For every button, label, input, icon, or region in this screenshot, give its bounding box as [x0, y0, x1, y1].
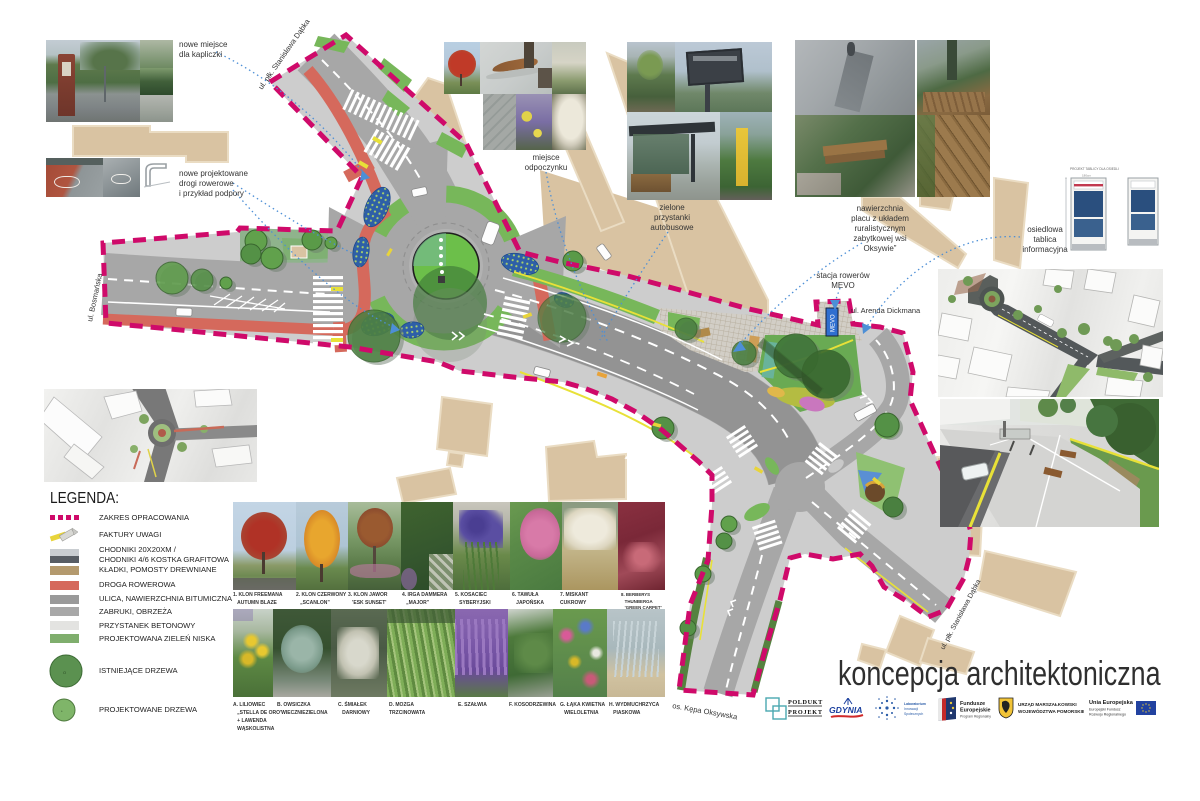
svg-text:Unia Europejska: Unia Europejska: [1089, 700, 1134, 706]
svg-text:Europejskie: Europejskie: [960, 708, 991, 714]
svg-text:180cm: 180cm: [1082, 174, 1092, 178]
svg-text:WOJEWÓDZTWA POMORSKIEGO: WOJEWÓDZTWA POMORSKIEGO: [1018, 707, 1084, 714]
svg-text:Społecznych: Społecznych: [904, 712, 923, 716]
svg-text:GDYNIA: GDYNIA: [829, 705, 862, 715]
svg-text:PROJEKT TABLICY DLA OSIEDLI: PROJEKT TABLICY DLA OSIEDLI: [1070, 167, 1119, 171]
svg-text:os. Kępa Oksywska: os. Kępa Oksywska: [672, 701, 739, 721]
svg-text:Innowacji: Innowacji: [904, 707, 918, 711]
svg-text:Laboratorium: Laboratorium: [904, 702, 926, 706]
svg-text:Program Regionalny: Program Regionalny: [960, 715, 991, 719]
svg-text:O: O: [63, 670, 66, 675]
svg-text:PROJEKT: PROJEKT: [788, 709, 823, 716]
svg-text:URZĄD MARSZAŁKOWSKI: URZĄD MARSZAŁKOWSKI: [1018, 702, 1077, 707]
svg-text:MEVO: MEVO: [831, 314, 837, 332]
svg-text:Fundusze: Fundusze: [960, 701, 985, 707]
svg-text:ul. Arenda Dickmana: ul. Arenda Dickmana: [851, 306, 921, 315]
svg-text:POLDUKT: POLDUKT: [788, 699, 823, 706]
svg-text:Europejski Fundusz: Europejski Fundusz: [1089, 708, 1121, 712]
svg-text:Rozwoju Regionalnego: Rozwoju Regionalnego: [1089, 713, 1126, 717]
